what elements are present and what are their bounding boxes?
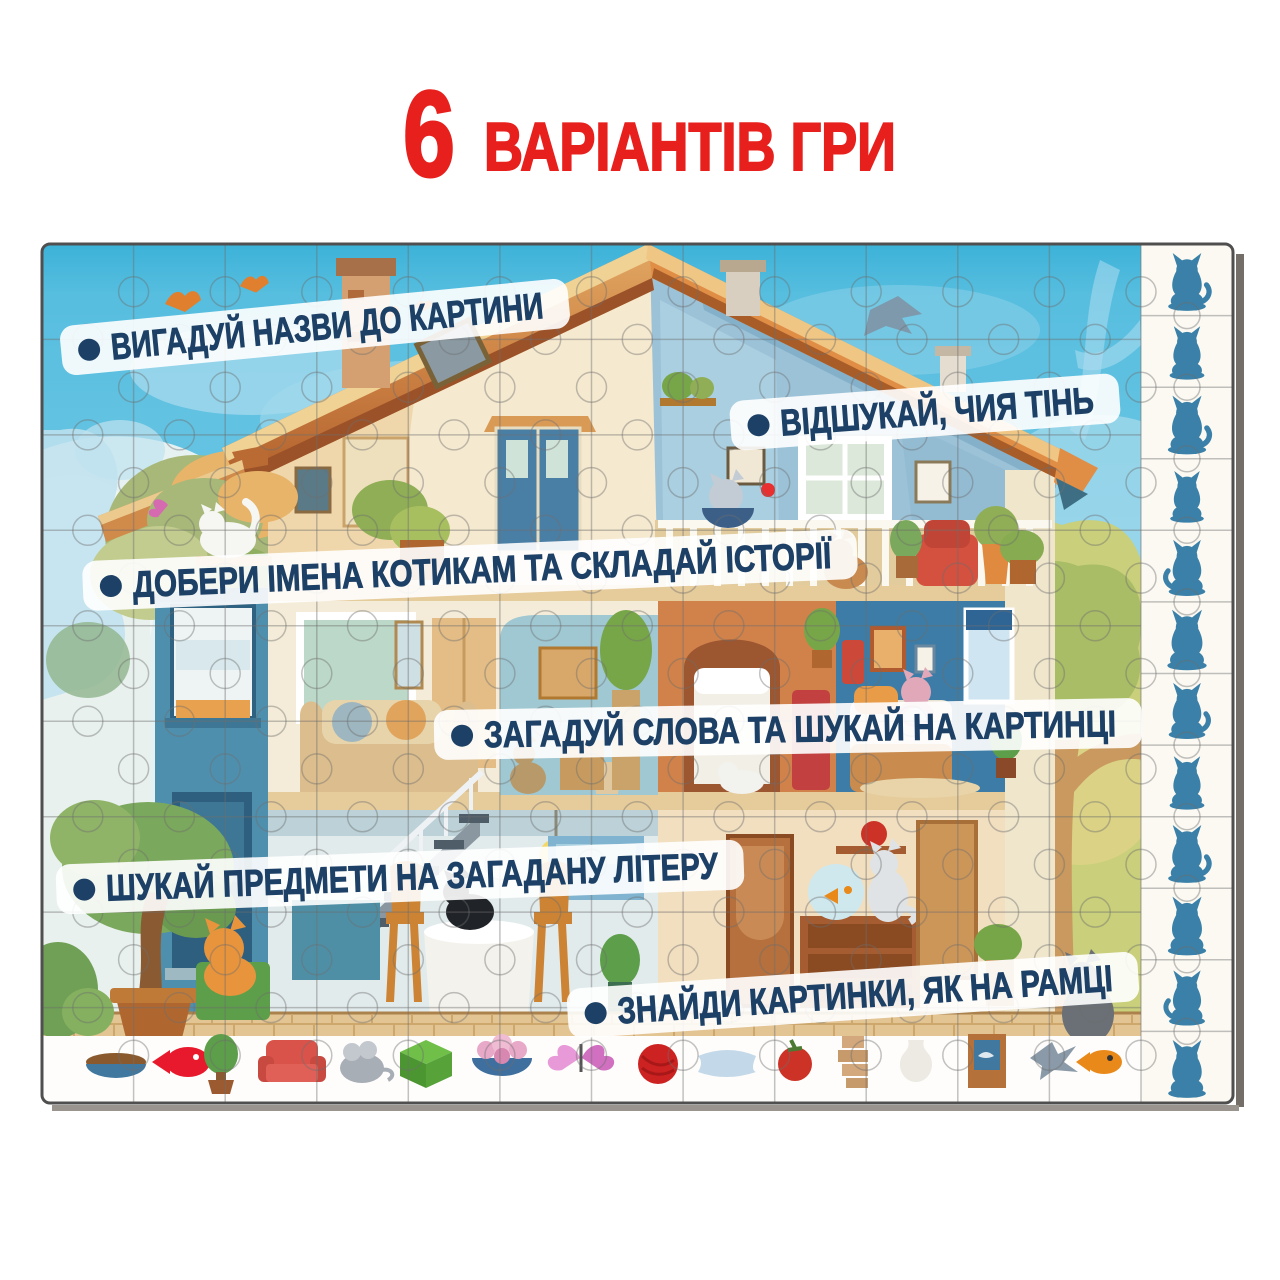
- svg-text:6: 6: [403, 66, 455, 202]
- svg-text:ВАРІАНТІВ ГРИ: ВАРІАНТІВ ГРИ: [484, 109, 896, 185]
